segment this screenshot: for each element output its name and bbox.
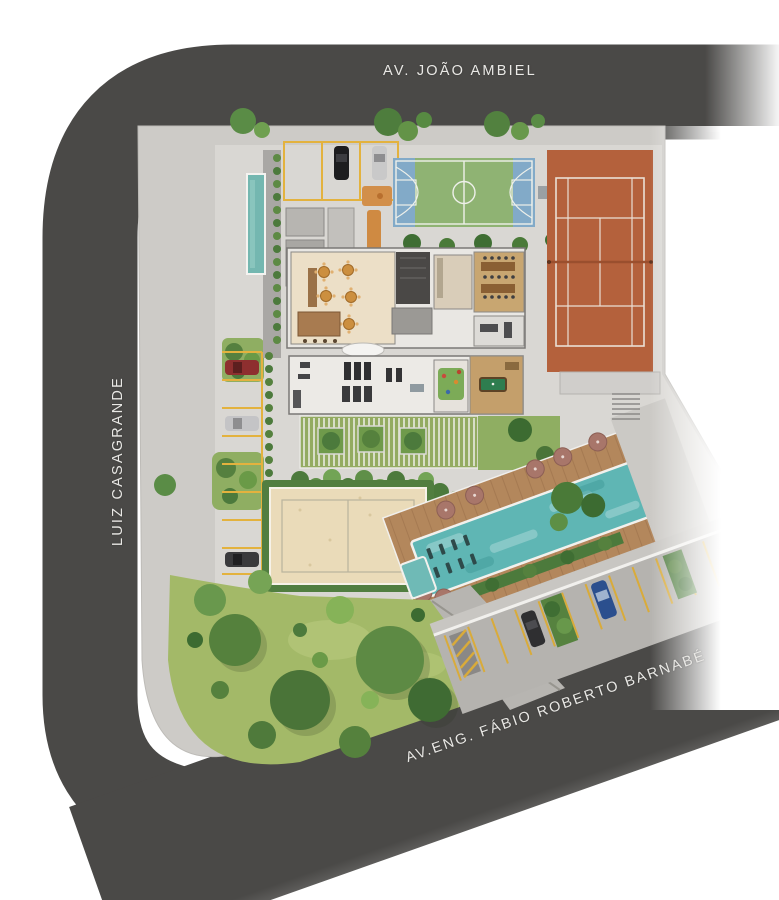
street-label-left: LUIZ CASAGRANDE: [110, 386, 126, 546]
margin-top: [0, 0, 779, 42]
car-silver: [372, 146, 387, 180]
pergola: [300, 416, 560, 470]
kids-playroom: [434, 360, 468, 412]
tennis-court: [547, 150, 653, 372]
elevator-core: [392, 252, 432, 334]
bench-hoop: [538, 186, 548, 199]
hedge-row: [273, 154, 281, 344]
clubhouse: [287, 248, 525, 357]
dining-room: [474, 252, 524, 312]
car-black: [334, 146, 349, 180]
car-dark: [225, 552, 259, 567]
lounge-rooms: [474, 316, 524, 346]
basketball-court: [393, 158, 548, 227]
entry-canopy: [342, 343, 384, 357]
fade-top-right: [705, 40, 779, 132]
game-room: [470, 356, 523, 414]
margin-left: [0, 0, 38, 900]
amenity-strip: [289, 356, 523, 414]
site-plan-canvas: AV. JOÃO AMBIEL LUIZ CASAGRANDE AV.ENG. …: [0, 0, 779, 900]
water-mirror: [247, 174, 265, 274]
street-label-top: AV. JOÃO AMBIEL: [340, 63, 580, 79]
kitchen: [434, 255, 472, 309]
car-silver-2: [225, 416, 259, 431]
pergola-planters: [318, 426, 426, 454]
car-red: [225, 360, 259, 375]
